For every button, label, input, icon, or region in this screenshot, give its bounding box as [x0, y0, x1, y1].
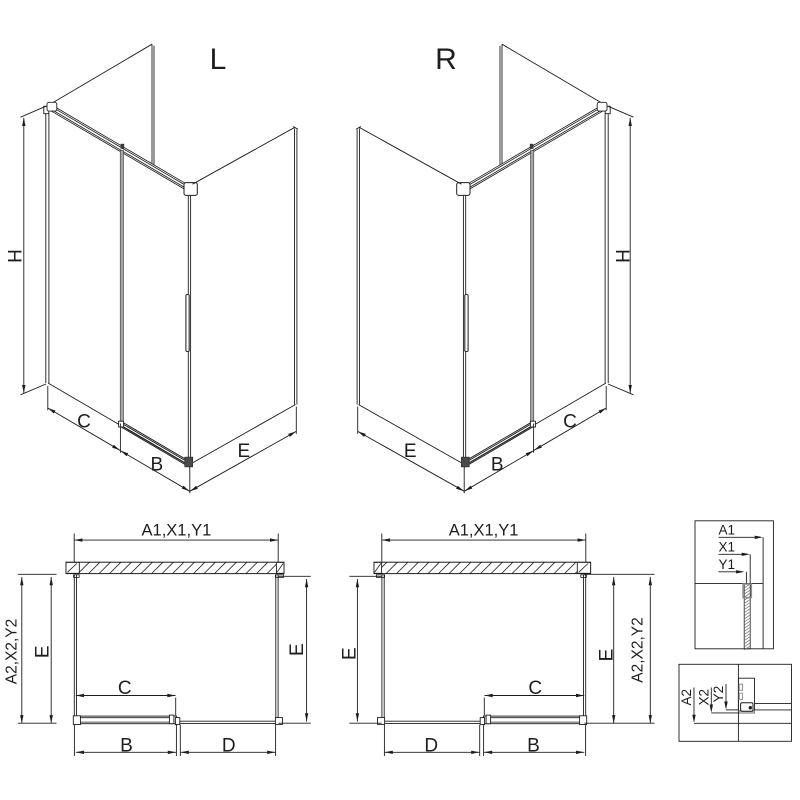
svg-text:X1: X1 [719, 540, 736, 555]
svg-text:B: B [491, 454, 504, 475]
svg-text:D: D [424, 735, 438, 756]
svg-text:B: B [150, 454, 163, 475]
svg-text:Y2: Y2 [711, 686, 726, 703]
svg-text:D: D [222, 735, 236, 756]
svg-text:H: H [614, 249, 635, 263]
svg-text:X2: X2 [697, 689, 712, 706]
svg-text:Y1: Y1 [719, 557, 736, 572]
svg-text:E: E [237, 441, 250, 462]
svg-text:B: B [120, 735, 133, 756]
svg-text:A1: A1 [719, 523, 736, 538]
svg-text:C: C [118, 678, 132, 699]
svg-text:A1,X1,Y1: A1,X1,Y1 [142, 521, 212, 539]
svg-text:E: E [596, 649, 617, 662]
svg-text:C: C [77, 412, 91, 433]
svg-text:A2: A2 [679, 689, 694, 706]
svg-text:E: E [404, 441, 417, 462]
svg-text:H: H [6, 249, 27, 263]
svg-text:E: E [33, 645, 54, 658]
svg-text:A2,X2,Y2: A2,X2,Y2 [630, 617, 647, 683]
svg-text:R: R [435, 43, 457, 76]
svg-text:B: B [527, 735, 540, 756]
svg-text:E: E [287, 643, 308, 656]
svg-text:L: L [210, 43, 227, 76]
svg-text:A2,X2,Y2: A2,X2,Y2 [4, 619, 21, 685]
svg-text:A1,X1,Y1: A1,X1,Y1 [449, 521, 519, 539]
svg-text:C: C [528, 678, 542, 699]
svg-text:C: C [563, 412, 577, 433]
svg-text:E: E [339, 647, 360, 660]
